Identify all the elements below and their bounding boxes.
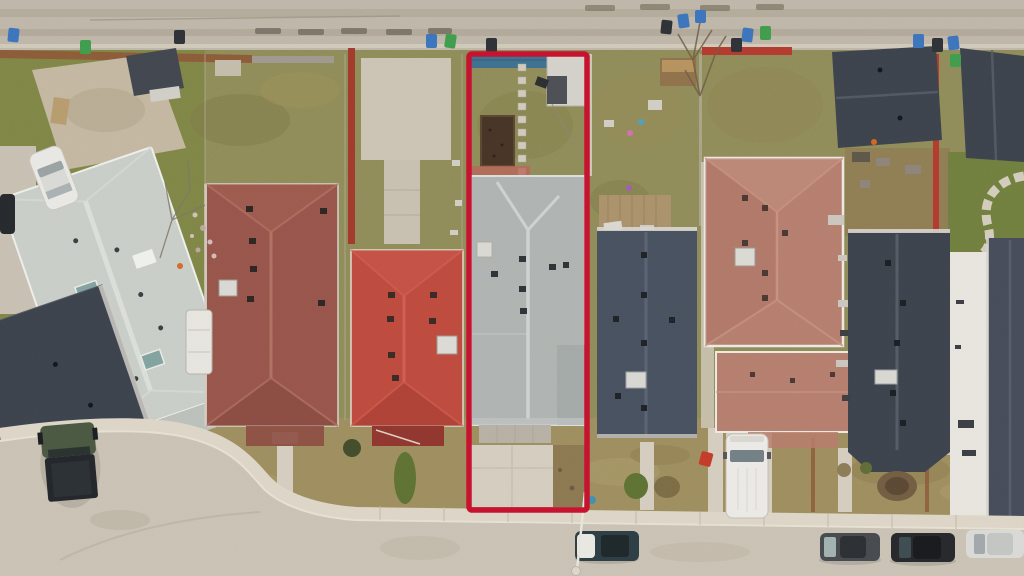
- photo-grain: [0, 0, 1024, 576]
- aerial-photo: [0, 0, 1024, 576]
